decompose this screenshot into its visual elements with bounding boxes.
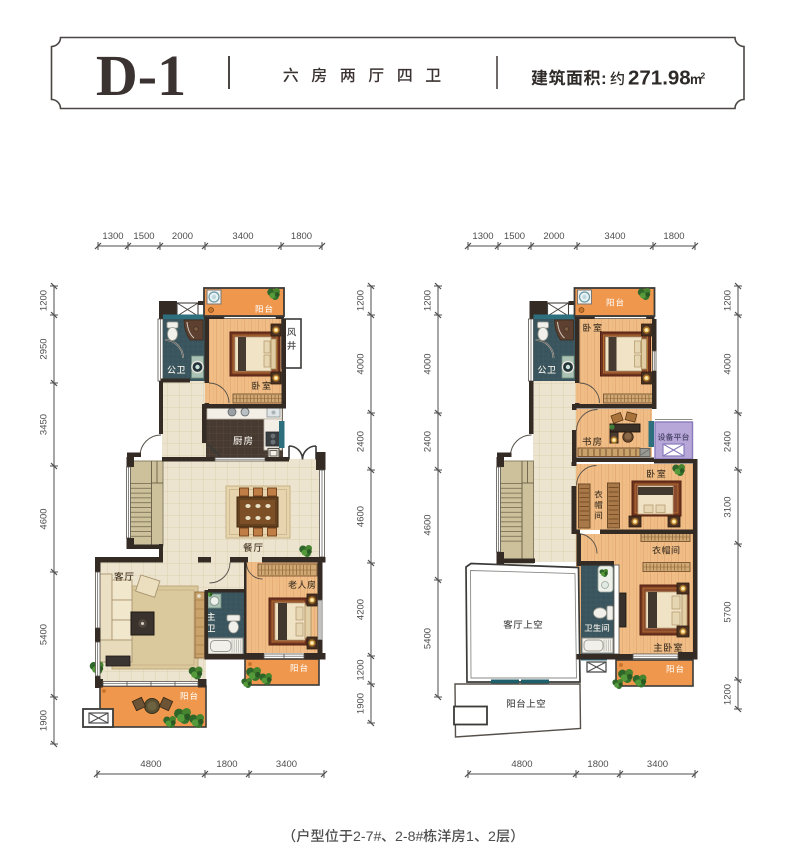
svg-text:1300: 1300 <box>102 231 123 242</box>
svg-text:1800: 1800 <box>291 231 312 242</box>
svg-text::: : <box>601 69 607 88</box>
svg-text:1200: 1200 <box>356 659 367 680</box>
svg-text:2: 2 <box>701 71 706 81</box>
svg-text:2-8#: 2-8# <box>395 829 424 845</box>
svg-text:4200: 4200 <box>356 599 367 620</box>
svg-text:4600: 4600 <box>39 508 50 529</box>
svg-text:1500: 1500 <box>133 231 154 242</box>
svg-text:3400: 3400 <box>276 759 297 770</box>
svg-text:2000: 2000 <box>543 231 564 242</box>
svg-text:3400: 3400 <box>647 759 668 770</box>
svg-text:5700: 5700 <box>723 601 734 622</box>
svg-text:271.98: 271.98 <box>628 67 691 90</box>
svg-text:2400: 2400 <box>423 431 434 452</box>
svg-text:1800: 1800 <box>663 231 684 242</box>
svg-text:4000: 4000 <box>723 353 734 374</box>
svg-text:3400: 3400 <box>232 231 253 242</box>
svg-text:1200: 1200 <box>723 290 734 311</box>
svg-text:1300: 1300 <box>472 231 493 242</box>
svg-text:4000: 4000 <box>356 353 367 374</box>
svg-text:4000: 4000 <box>423 353 434 374</box>
svg-text:2000: 2000 <box>172 231 193 242</box>
svg-text:1800: 1800 <box>216 759 237 770</box>
svg-text:3400: 3400 <box>604 231 625 242</box>
svg-text:2400: 2400 <box>723 431 734 452</box>
svg-text:1200: 1200 <box>723 684 734 705</box>
svg-text:5400: 5400 <box>423 628 434 649</box>
svg-text:3100: 3100 <box>723 496 734 517</box>
svg-text:2-7#: 2-7# <box>353 829 382 845</box>
svg-text:1900: 1900 <box>356 693 367 714</box>
svg-text:4800: 4800 <box>140 759 161 770</box>
svg-text:2950: 2950 <box>39 338 50 359</box>
svg-text:1900: 1900 <box>39 710 50 731</box>
svg-text:1800: 1800 <box>587 759 608 770</box>
svg-text:5400: 5400 <box>39 624 50 645</box>
svg-text:1: 1 <box>466 829 474 845</box>
svg-text:2400: 2400 <box>356 431 367 452</box>
svg-text:1500: 1500 <box>504 231 525 242</box>
svg-text:2: 2 <box>488 829 496 845</box>
svg-text:4600: 4600 <box>423 514 434 535</box>
svg-text:3450: 3450 <box>39 414 50 435</box>
svg-text:1200: 1200 <box>39 290 50 311</box>
svg-text:4800: 4800 <box>511 759 532 770</box>
svg-text:4600: 4600 <box>356 506 367 527</box>
svg-text:1200: 1200 <box>356 290 367 311</box>
svg-text:D-1: D-1 <box>96 43 186 108</box>
svg-text:1200: 1200 <box>423 290 434 311</box>
